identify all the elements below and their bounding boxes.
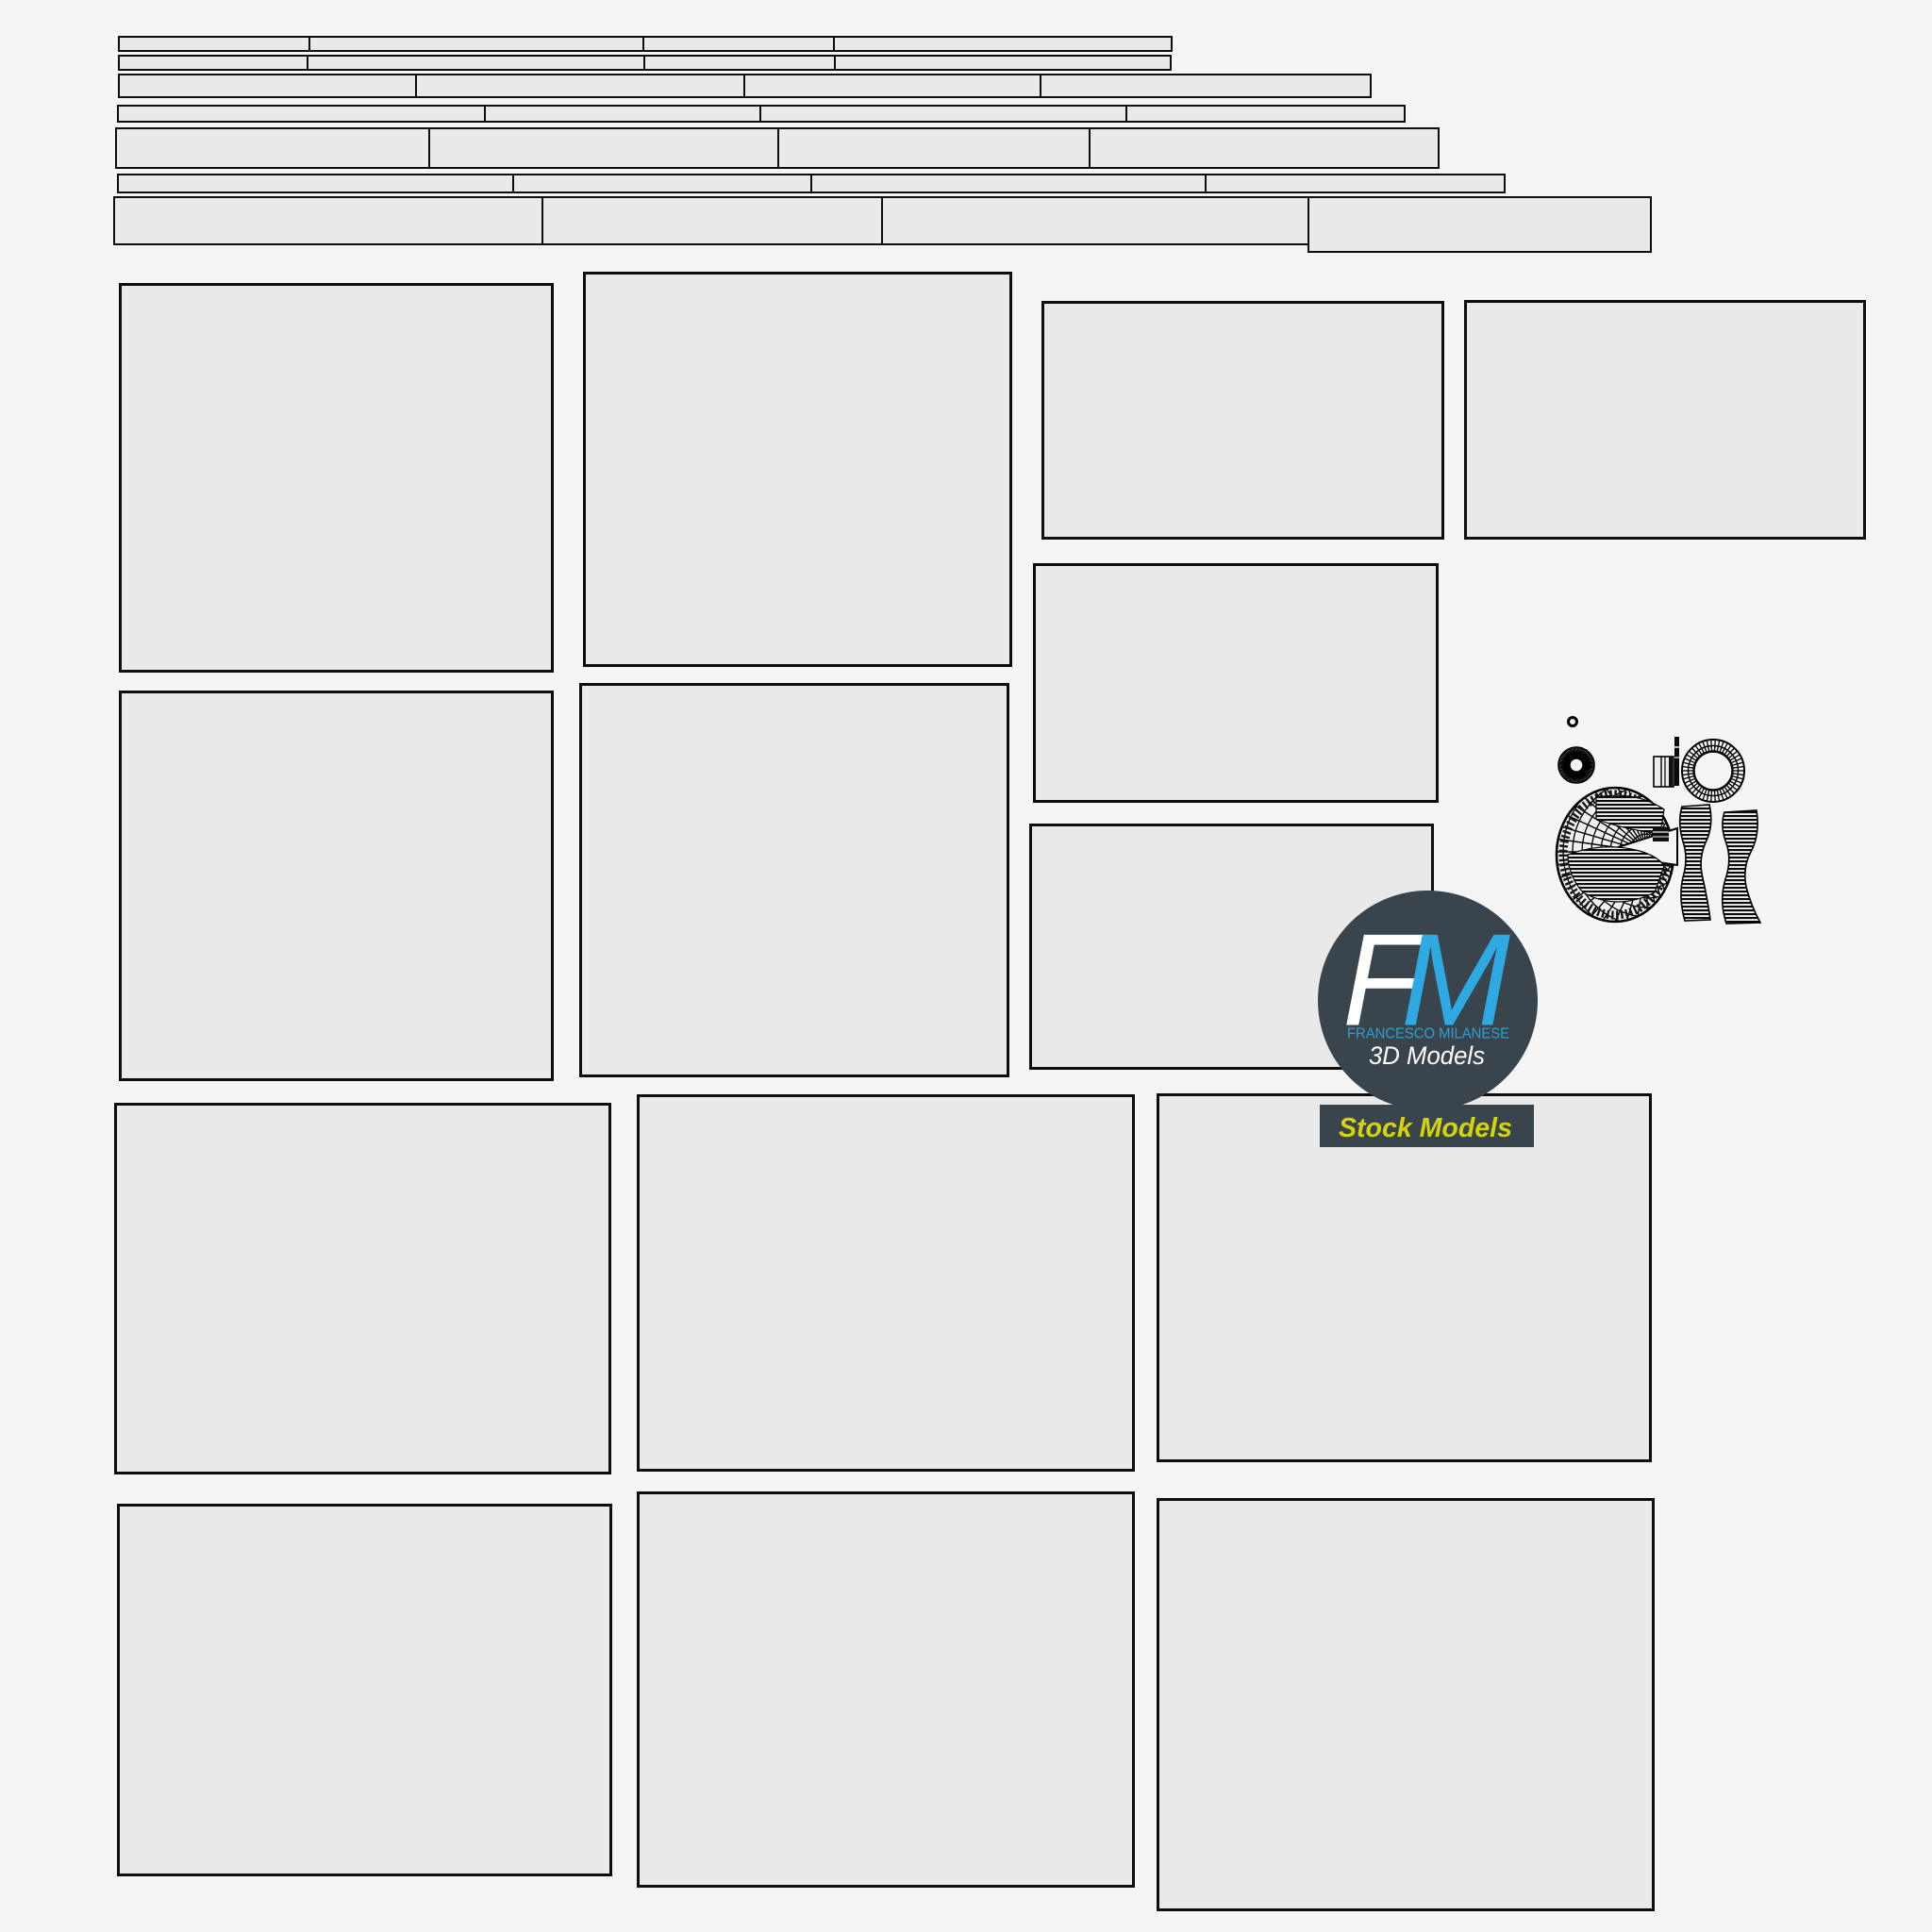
svg-text:3D Models: 3D Models [1369,1041,1485,1070]
svg-text:FRANCESCO MILANESE: FRANCESCO MILANESE [1347,1026,1509,1042]
svg-text:Stock Models: Stock Models [1339,1113,1512,1143]
